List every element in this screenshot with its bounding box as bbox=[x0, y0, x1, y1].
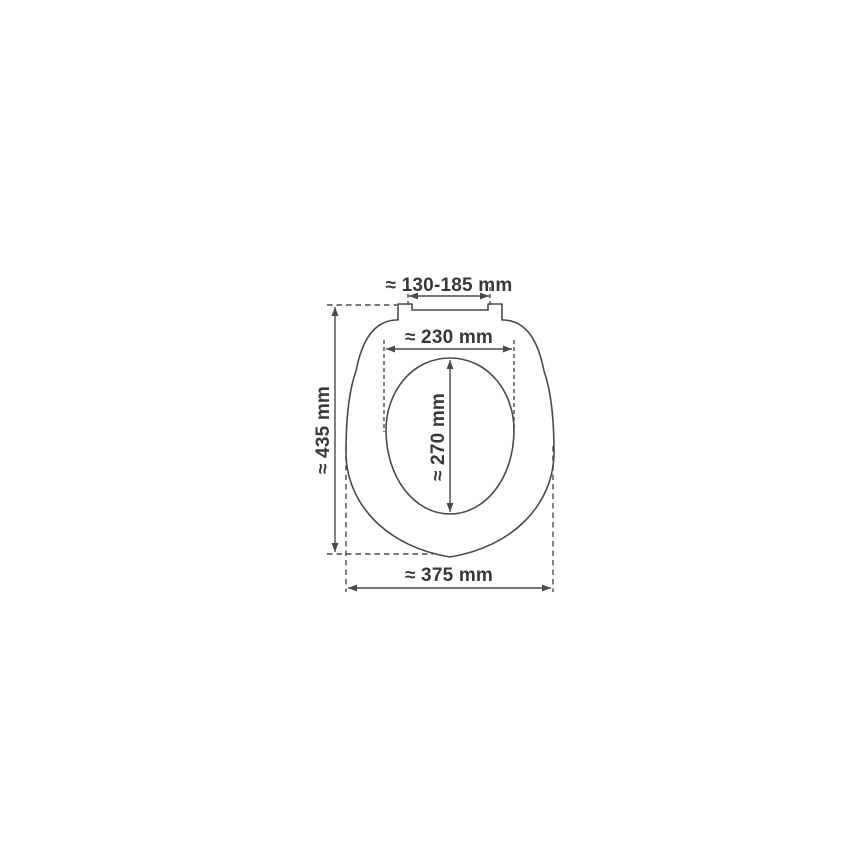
overall-length-label: ≈ 435 mm bbox=[313, 386, 334, 474]
toilet-seat-dimension-diagram: ≈ 130-185 mm ≈ 230 mm ≈ 270 mm ≈ 435 mm … bbox=[0, 0, 868, 868]
diagram-labels: ≈ 130-185 mm ≈ 230 mm ≈ 270 mm ≈ 435 mm … bbox=[313, 275, 512, 586]
hinge-spacing-label: ≈ 130-185 mm bbox=[386, 275, 513, 296]
diagram-canvas: ≈ 130-185 mm ≈ 230 mm ≈ 270 mm ≈ 435 mm … bbox=[0, 0, 868, 868]
overall-width-label: ≈ 375 mm bbox=[405, 565, 493, 586]
opening-length-label: ≈ 270 mm bbox=[428, 393, 449, 481]
opening-width-label: ≈ 230 mm bbox=[405, 327, 493, 348]
